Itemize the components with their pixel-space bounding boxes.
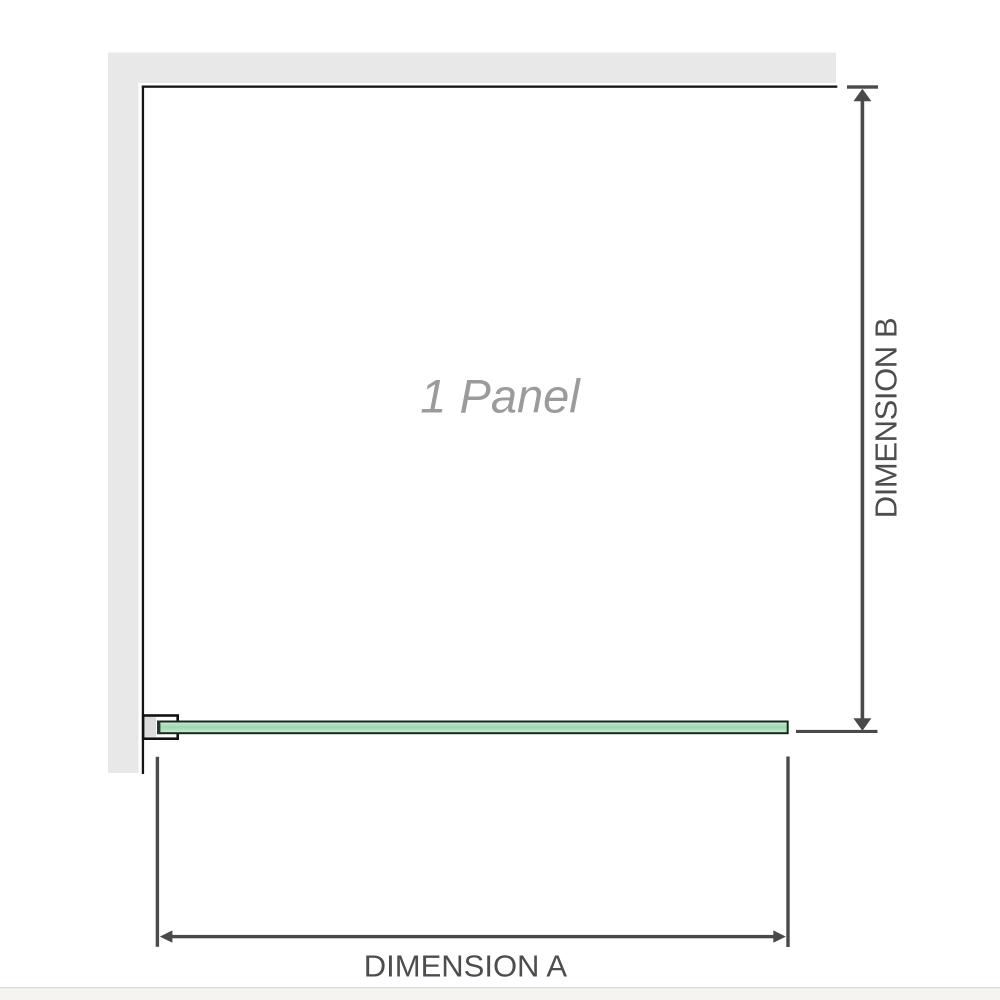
svg-text:DIMENSION B: DIMENSION B xyxy=(869,318,904,519)
svg-text:1 Panel: 1 Panel xyxy=(420,370,581,423)
svg-text:DIMENSION A: DIMENSION A xyxy=(364,949,568,984)
